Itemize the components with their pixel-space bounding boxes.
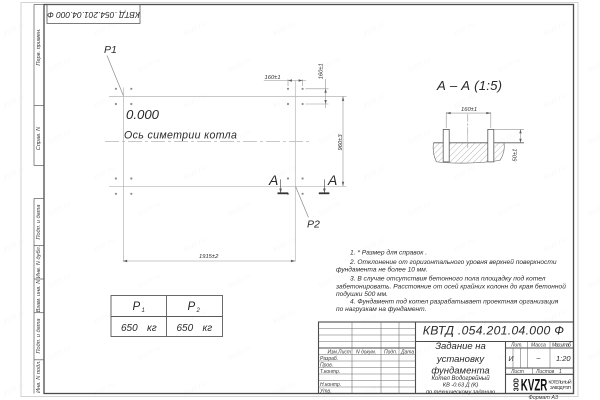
svg-text:P: P bbox=[133, 301, 141, 313]
svg-text:1915±2: 1915±2 bbox=[199, 254, 219, 260]
svg-text:КВ -0.63 Д (К): КВ -0.63 Д (К) bbox=[443, 383, 479, 389]
svg-text:KVZR: KVZR bbox=[521, 377, 548, 395]
svg-text:Листов: Листов bbox=[535, 369, 555, 375]
svg-text:960±3: 960±3 bbox=[338, 134, 344, 151]
svg-text:забетонировать. Расстояние от: забетонировать. Расстояние от осей крайн… bbox=[335, 283, 566, 291]
svg-text:1: 1 bbox=[559, 369, 562, 375]
svg-text:650: 650 bbox=[121, 323, 138, 334]
svg-text:Лит.: Лит. bbox=[510, 343, 523, 349]
svg-text:650: 650 bbox=[177, 323, 194, 334]
svg-text:кг: кг bbox=[203, 323, 213, 334]
svg-text:Дата: Дата bbox=[400, 350, 414, 356]
svg-text:подушки 500 мм.: подушки 500 мм. bbox=[336, 290, 388, 298]
svg-text:Инв. N дубл.: Инв. N дубл. bbox=[36, 246, 42, 278]
svg-text:Справ. N: Справ. N bbox=[36, 126, 42, 150]
svg-text:0.000: 0.000 bbox=[126, 107, 160, 122]
svg-text:ЗАВОД РЭП: ЗАВОД РЭП bbox=[550, 385, 571, 390]
svg-text:Формат А3: Формат А3 bbox=[529, 395, 559, 400]
svg-text:КОТЕЛЬНЫЙ: КОТЕЛЬНЫЙ bbox=[549, 380, 572, 385]
svg-text:по техническому заданию: по техническому заданию bbox=[426, 389, 496, 395]
svg-text:4. Фундамент под котел разраба: 4. Фундамент под котел разрабатывает про… bbox=[350, 298, 559, 306]
svg-text:Подп. и дата: Подп. и дата bbox=[36, 204, 42, 239]
svg-text:Котел Водогрейный: Котел Водогрейный bbox=[431, 375, 490, 382]
svg-text:3. В случае отсутствия бетонно: 3. В случае отсутствия бетонного пола пл… bbox=[350, 275, 546, 283]
svg-text:А: А bbox=[268, 172, 278, 188]
svg-text:Перв. примен.: Перв. примен. bbox=[36, 28, 42, 65]
svg-text:Пров.: Пров. bbox=[320, 363, 333, 369]
svg-text:–: – bbox=[536, 355, 541, 362]
svg-text:ЗОD: ЗОD bbox=[512, 378, 521, 391]
svg-text:Масса: Масса bbox=[531, 343, 546, 349]
svg-text:P2: P2 bbox=[307, 219, 320, 231]
svg-text:Инв. N подл.: Инв. N подл. bbox=[36, 360, 42, 393]
svg-text:фундамента не более 10 мм.: фундамента не более 10 мм. bbox=[336, 266, 428, 274]
svg-text:Масштаб: Масштаб bbox=[552, 343, 571, 349]
svg-text:160±1: 160±1 bbox=[265, 75, 281, 81]
svg-text:2. Отклонение от горизонтально: 2. Отклонение от горизонтального уровня … bbox=[349, 258, 557, 266]
svg-text:1: 1 bbox=[142, 308, 145, 314]
svg-text:КВТД .054.201.04.000 Ф: КВТД .054.201.04.000 Ф bbox=[423, 323, 564, 337]
svg-text:N докум.: N докум. bbox=[356, 350, 376, 356]
svg-text:Изм.Лист: Изм.Лист bbox=[328, 350, 352, 356]
svg-text:2: 2 bbox=[196, 308, 201, 314]
svg-text:Ось симетрии котла: Ось симетрии котла bbox=[124, 130, 237, 142]
svg-text:160±1: 160±1 bbox=[319, 63, 325, 79]
svg-text:P1: P1 bbox=[104, 44, 117, 56]
svg-text:Разраб.: Разраб. bbox=[320, 356, 338, 362]
svg-text:Подп. и дата: Подп. и дата bbox=[36, 318, 42, 353]
svg-text:А: А bbox=[327, 172, 337, 188]
svg-text:Т.контр.: Т.контр. bbox=[320, 369, 340, 375]
svg-text:фундамента: фундамента bbox=[431, 366, 489, 377]
svg-text:Подп.: Подп. bbox=[384, 350, 397, 356]
svg-text:КВТД .054.201.04.000 Ф: КВТД .054.201.04.000 Ф bbox=[47, 10, 140, 20]
svg-text:Взам. инв. N: Взам. инв. N bbox=[36, 279, 42, 313]
svg-text:по нагрузкам на фундамент.: по нагрузкам на фундамент. bbox=[336, 305, 427, 313]
svg-text:Утв.: Утв. bbox=[320, 389, 331, 395]
svg-text:Лист: Лист bbox=[510, 369, 524, 375]
svg-text:кг: кг bbox=[147, 323, 157, 334]
svg-text:Задание на: Задание на bbox=[435, 341, 486, 352]
svg-text:1. * Размер для справок .: 1. * Размер для справок . bbox=[350, 249, 427, 257]
svg-text:P: P bbox=[188, 301, 196, 313]
svg-text:50±1: 50±1 bbox=[513, 149, 519, 162]
svg-text:Н.контр.: Н.контр. bbox=[320, 382, 341, 388]
svg-text:1:20: 1:20 bbox=[556, 354, 571, 363]
svg-text:установку: установку bbox=[436, 354, 486, 365]
svg-text:А – А (1:5): А – А (1:5) bbox=[436, 78, 502, 93]
svg-text:160±1: 160±1 bbox=[461, 107, 477, 113]
